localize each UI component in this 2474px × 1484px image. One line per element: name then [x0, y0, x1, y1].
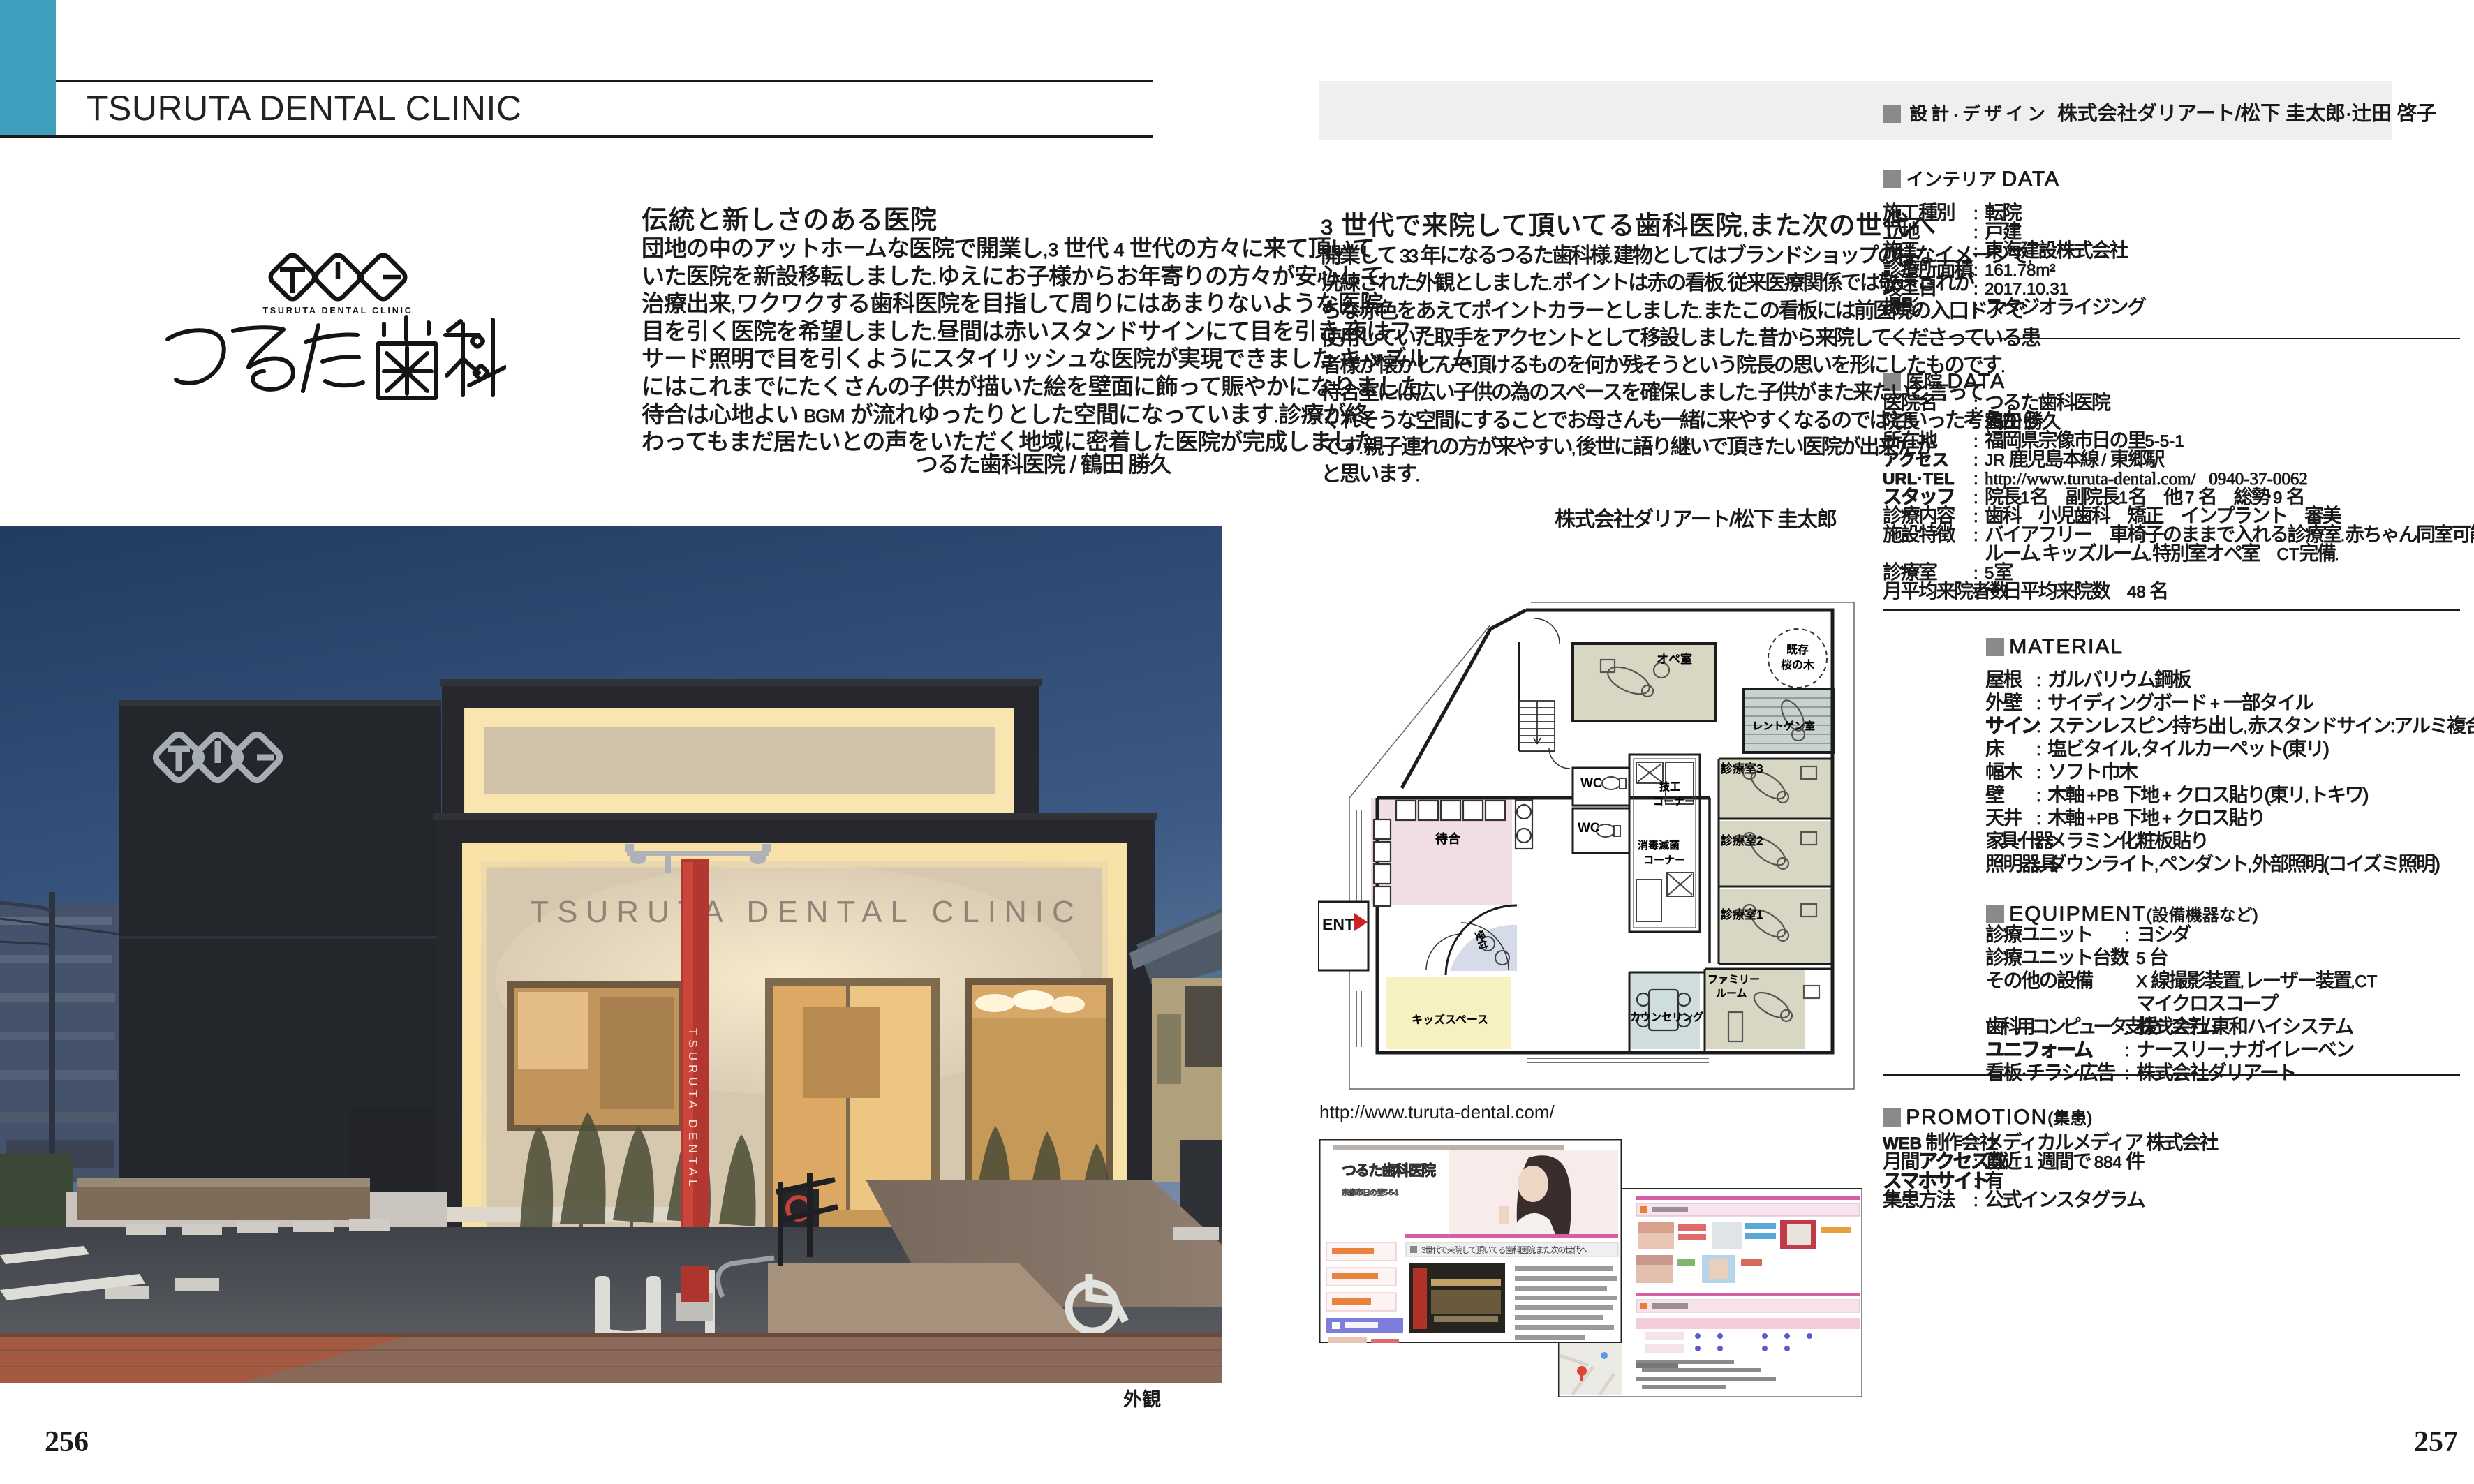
svg-text:診療室2: 診療室2: [1721, 834, 1763, 847]
svg-text:WC: WC: [1578, 821, 1600, 836]
svg-text:診療室3: 診療室3: [1721, 762, 1763, 776]
svg-text:桜の木: 桜の木: [1781, 659, 1814, 671]
svg-text:コーナー: コーナー: [1653, 796, 1695, 808]
svg-text:ファミリー: ファミリー: [1708, 974, 1760, 986]
svg-text:ENT: ENT: [1322, 915, 1354, 933]
svg-text:オペ室: オペ室: [1657, 653, 1692, 666]
svg-text:つるた歯科医院: つるた歯科医院: [1342, 1162, 1436, 1179]
svg-text:WC: WC: [1580, 776, 1603, 791]
svg-text:3世代で来院して頂いてる歯科医院,また次の世代へ: 3世代で来院して頂いてる歯科医院,また次の世代へ: [1421, 1245, 1588, 1255]
svg-text:TSURUTA DENTAL: TSURUTA DENTAL: [686, 1028, 699, 1191]
svg-text:待合: 待合: [1435, 832, 1460, 846]
svg-text:キッズスペース: キッズスペース: [1412, 1014, 1488, 1026]
svg-text:TSURUTA DENTAL CLINIC: TSURUTA DENTAL CLINIC: [530, 895, 1082, 929]
svg-text:既存: 既存: [1786, 644, 1809, 656]
svg-text:ルーム: ルーム: [1716, 988, 1747, 1000]
svg-text:消毒滅菌: 消毒滅菌: [1638, 840, 1680, 852]
svg-text:技工: 技工: [1659, 781, 1680, 793]
svg-text:診療室1: 診療室1: [1721, 908, 1763, 921]
svg-text:宗像市日の里5-5-1: 宗像市日の里5-5-1: [1342, 1187, 1399, 1197]
svg-text:レントゲン室: レントゲン室: [1752, 720, 1815, 732]
svg-text:コーナー: コーナー: [1643, 854, 1685, 866]
svg-text:カウンセリング: カウンセリング: [1630, 1011, 1703, 1023]
